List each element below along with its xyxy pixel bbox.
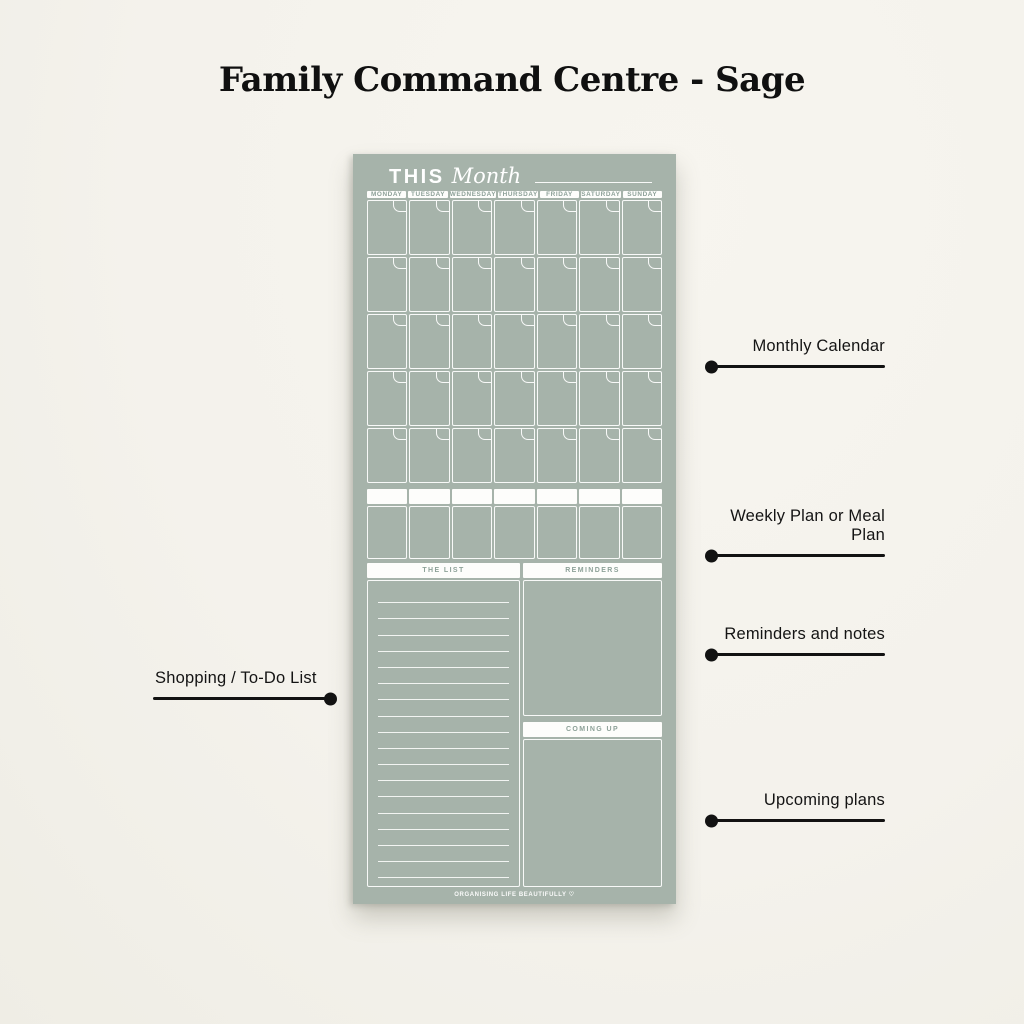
weekly-plan-cell <box>452 506 492 559</box>
date-corner-tab <box>436 258 449 269</box>
callout-upcoming: Upcoming plans <box>708 791 885 822</box>
day-label: WEDNESDAY <box>450 191 496 198</box>
pointer-line <box>708 554 885 558</box>
date-corner-tab <box>436 372 449 383</box>
list-ruled-line <box>378 700 509 716</box>
weekly-plan-header <box>367 489 407 504</box>
callout-shopping-list: Shopping / To-Do List <box>153 669 334 700</box>
list-ruled-line <box>378 603 509 619</box>
callout-monthly-calendar: Monthly Calendar <box>708 337 885 368</box>
weekly-plan-column <box>367 489 407 559</box>
weekly-plan-cell <box>494 506 534 559</box>
pointer-dot <box>324 692 337 705</box>
weekly-plan-column <box>537 489 577 559</box>
calendar-day-cell <box>622 371 662 426</box>
calendar-day-cell <box>409 257 449 312</box>
pointer-dot <box>705 549 718 562</box>
calendar-day-cell <box>452 314 492 369</box>
calendar-day-cell <box>537 371 577 426</box>
list-ruled-line <box>378 684 509 700</box>
date-corner-tab <box>521 201 534 212</box>
weekly-plan-header <box>494 489 534 504</box>
calendar-day-cell <box>494 257 534 312</box>
date-corner-tab <box>606 258 619 269</box>
calendar-day-cell <box>622 257 662 312</box>
weekly-plan-header <box>579 489 619 504</box>
calendar-day-cell <box>452 428 492 483</box>
weekly-plan-header <box>409 489 449 504</box>
planner-board: THIS Month MONDAYTUESDAYWEDNESDAYTHURSDA… <box>353 154 676 904</box>
planner-header-month: Month <box>452 164 522 188</box>
list-box <box>367 580 520 887</box>
calendar-day-cell <box>367 371 407 426</box>
page-title: Family Command Centre - Sage <box>0 60 1024 100</box>
calendar-day-cell <box>579 200 619 255</box>
weekly-plan-row <box>367 489 662 559</box>
date-corner-tab <box>648 258 661 269</box>
list-ruled-line <box>378 717 509 733</box>
calendar-day-cell <box>622 428 662 483</box>
date-corner-tab <box>606 372 619 383</box>
monthly-calendar-grid <box>367 200 662 483</box>
date-corner-tab <box>478 315 491 326</box>
coming-up-section-header: COMING UP <box>523 722 662 737</box>
reminders-section-header: REMINDERS <box>523 563 662 578</box>
weekly-plan-column <box>452 489 492 559</box>
calendar-day-cell <box>452 257 492 312</box>
list-ruled-line <box>378 749 509 765</box>
calendar-day-cell <box>367 314 407 369</box>
calendar-day-cell <box>579 371 619 426</box>
planner-header-underline <box>535 182 652 183</box>
calendar-day-cell <box>452 371 492 426</box>
date-corner-tab <box>393 201 406 212</box>
date-corner-tab <box>393 429 406 440</box>
weekly-plan-column <box>494 489 534 559</box>
date-corner-tab <box>521 315 534 326</box>
calendar-day-cell <box>579 257 619 312</box>
calendar-day-cell <box>409 200 449 255</box>
weekly-plan-header <box>622 489 662 504</box>
list-ruled-line <box>378 830 509 846</box>
list-section-header: THE LIST <box>367 563 520 578</box>
pointer-line <box>708 365 885 369</box>
planner-header: THIS Month <box>389 164 654 189</box>
planner-header-this: THIS <box>389 166 445 189</box>
weekly-plan-column <box>409 489 449 559</box>
pointer-dot <box>705 648 718 661</box>
date-corner-tab <box>648 429 661 440</box>
day-label: SUNDAY <box>623 191 662 198</box>
calendar-day-cell <box>537 314 577 369</box>
pointer-line <box>153 697 334 701</box>
date-corner-tab <box>563 201 576 212</box>
callout-reminders: Reminders and notes <box>708 625 885 656</box>
date-corner-tab <box>606 429 619 440</box>
weekly-plan-header <box>537 489 577 504</box>
date-corner-tab <box>478 429 491 440</box>
pointer-line <box>708 653 885 657</box>
calendar-day-cell <box>622 314 662 369</box>
date-corner-tab <box>521 258 534 269</box>
date-corner-tab <box>606 201 619 212</box>
callout-label: Weekly Plan or Meal Plan <box>708 507 885 545</box>
reminders-column: REMINDERS COMING UP <box>523 563 662 887</box>
calendar-day-cell <box>494 314 534 369</box>
date-corner-tab <box>521 372 534 383</box>
pointer-line <box>708 819 885 823</box>
list-ruled-line <box>378 781 509 797</box>
day-label: TUESDAY <box>408 191 447 198</box>
calendar-day-cell <box>579 314 619 369</box>
day-label: SATURDAY <box>581 191 620 198</box>
calendar-day-cell <box>367 428 407 483</box>
weekly-plan-column <box>579 489 619 559</box>
date-corner-tab <box>563 372 576 383</box>
weekly-plan-header <box>452 489 492 504</box>
calendar-day-cell <box>579 428 619 483</box>
calendar-day-cell <box>537 428 577 483</box>
weekly-plan-cell <box>622 506 662 559</box>
date-corner-tab <box>648 372 661 383</box>
list-ruled-line <box>378 814 509 830</box>
bottom-section: THE LIST REMINDERS COMING UP <box>367 563 662 887</box>
callout-label: Shopping / To-Do List <box>153 669 334 688</box>
weekly-plan-cell <box>367 506 407 559</box>
callout-label: Reminders and notes <box>708 625 885 644</box>
weekly-plan-cell <box>537 506 577 559</box>
list-ruled-line <box>378 733 509 749</box>
list-ruled-line <box>378 619 509 635</box>
calendar-day-cell <box>409 371 449 426</box>
list-ruled-line <box>378 652 509 668</box>
list-ruled-line <box>378 765 509 781</box>
calendar-day-cell <box>622 200 662 255</box>
pointer-dot <box>705 360 718 373</box>
date-corner-tab <box>606 315 619 326</box>
date-corner-tab <box>393 258 406 269</box>
calendar-day-cell <box>409 314 449 369</box>
list-ruled-line <box>378 636 509 652</box>
date-corner-tab <box>563 315 576 326</box>
weekly-plan-cell <box>409 506 449 559</box>
calendar-day-cell <box>537 200 577 255</box>
date-corner-tab <box>478 372 491 383</box>
weekly-plan-column <box>622 489 662 559</box>
calendar-day-cell <box>367 257 407 312</box>
day-header-row: MONDAYTUESDAYWEDNESDAYTHURSDAYFRIDAYSATU… <box>367 191 662 198</box>
date-corner-tab <box>436 315 449 326</box>
list-ruled-line <box>378 846 509 862</box>
callout-label: Upcoming plans <box>708 791 885 810</box>
list-ruled-line <box>378 862 509 878</box>
calendar-day-cell <box>537 257 577 312</box>
calendar-day-cell <box>494 428 534 483</box>
list-ruled-line <box>378 668 509 684</box>
date-corner-tab <box>436 201 449 212</box>
date-corner-tab <box>648 201 661 212</box>
date-corner-tab <box>478 258 491 269</box>
date-corner-tab <box>478 201 491 212</box>
date-corner-tab <box>648 315 661 326</box>
list-ruled-line <box>378 797 509 813</box>
date-corner-tab <box>393 372 406 383</box>
callout-weekly-plan: Weekly Plan or Meal Plan <box>708 507 885 557</box>
day-label: FRIDAY <box>540 191 579 198</box>
calendar-day-cell <box>409 428 449 483</box>
calendar-day-cell <box>494 371 534 426</box>
date-corner-tab <box>563 258 576 269</box>
day-label: MONDAY <box>367 191 406 198</box>
list-column: THE LIST <box>367 563 520 887</box>
pointer-dot <box>705 814 718 827</box>
date-corner-tab <box>393 315 406 326</box>
brand-logo: Organising life Beautifully ♡ <box>367 887 662 901</box>
calendar-day-cell <box>494 200 534 255</box>
list-ruled-line <box>378 587 509 603</box>
callout-label: Monthly Calendar <box>708 337 885 356</box>
date-corner-tab <box>521 429 534 440</box>
weekly-plan-cell <box>579 506 619 559</box>
coming-up-box <box>523 739 662 887</box>
calendar-day-cell <box>452 200 492 255</box>
reminders-box <box>523 580 662 716</box>
calendar-day-cell <box>367 200 407 255</box>
day-label: THURSDAY <box>498 191 538 198</box>
date-corner-tab <box>563 429 576 440</box>
date-corner-tab <box>436 429 449 440</box>
